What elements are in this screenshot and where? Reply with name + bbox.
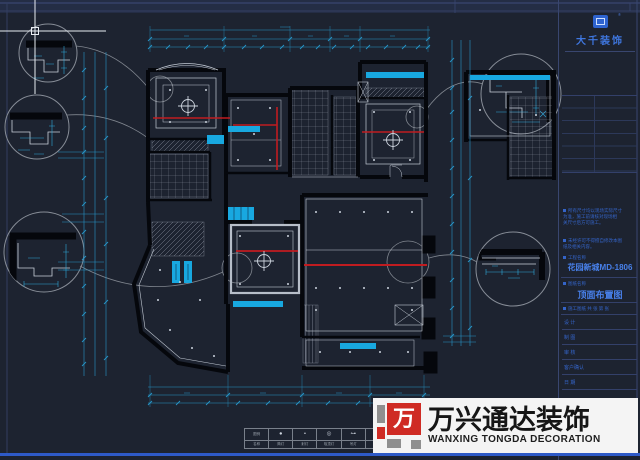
floor-plan [134,62,556,373]
project-label: 工程名称 [563,255,586,261]
legend-col: 图例名称 [245,429,269,448]
sign-row-date: 日 期 [562,376,637,390]
legend-col: ◎吸顶灯 [317,429,341,448]
brand-underline [565,51,635,52]
legend-table: 图例名称 ●筒灯 •射灯 ◎吸顶灯 ⊶吊灯 ⊞浴霸 [244,428,391,449]
bullet-icon [563,307,566,310]
detail-circle-mid-left [5,95,69,159]
legend-col: ●筒灯 [269,429,293,448]
sign-row-drafter: 制 图 [562,331,637,345]
revision-table [562,95,637,173]
watermark-company-cn: 万兴通达装饰 [428,406,601,434]
watermark-logo: 万 万兴通达装饰 WANXING TONGDA DECORATION [373,398,638,453]
detail-circle-top-left [19,24,77,82]
watermark-company-en: WANXING TONGDA DECORATION [428,434,601,445]
bullet-icon [563,209,566,212]
brand-logo-icon [593,15,608,28]
registered-mark: ® [618,12,621,17]
drawing-label: 图纸名称 [563,281,586,287]
legend-col: •射灯 [293,429,317,448]
ceiling-lamp-icon: ◎ [317,429,340,441]
sign-row-client: 客户确认 [562,361,637,375]
detail-circle-bottom-left [4,212,84,292]
wanxing-logo-icon: 万 [377,403,423,449]
spotlight-icon: • [293,429,316,441]
project-name: 花园新城MD-1806 [559,262,640,273]
sheet-info-label: 施工图纸 共 张 第 张 [563,306,609,312]
bullet-icon [563,239,566,242]
bullet-icon [563,282,566,285]
cad-drawing-canvas[interactable]: ® 大千装饰 所有尺寸均以现场实际尺寸 为准，施工前请核对现场相 关尺寸后方可施… [0,0,640,460]
pendant-lamp-icon: ⊶ [342,429,365,441]
sheet-bottom-border [0,453,640,456]
brand-header: ® 大千装饰 [559,15,640,52]
detail-circle-mid-right [476,232,550,306]
notes-paragraph-1: 所有尺寸均以现场实际尺寸 为准，施工前请核对现场相 关尺寸后方可施工。 [563,208,637,226]
notes-paragraph-2: 未经许可不得擅自修改本图 纸及相关内容。 [563,238,637,250]
sign-row-checker: 审 核 [562,346,637,360]
legend-col: ⊶吊灯 [342,429,366,448]
drawing-sheet [0,0,640,460]
brand-name: 大千装饰 [559,32,640,47]
sign-row-designer: 设 计 [562,316,637,330]
tiled-ceiling-areas [150,88,554,363]
downlight-icon: ● [269,429,292,441]
title-block: ® 大千装饰 所有尺寸均以现场实际尺寸 为准，施工前请核对现场相 关尺寸后方可施… [558,0,640,460]
drawing-name: 顶面布置图 [559,288,640,301]
bullet-icon [563,256,566,259]
dimension-chains [58,26,476,407]
